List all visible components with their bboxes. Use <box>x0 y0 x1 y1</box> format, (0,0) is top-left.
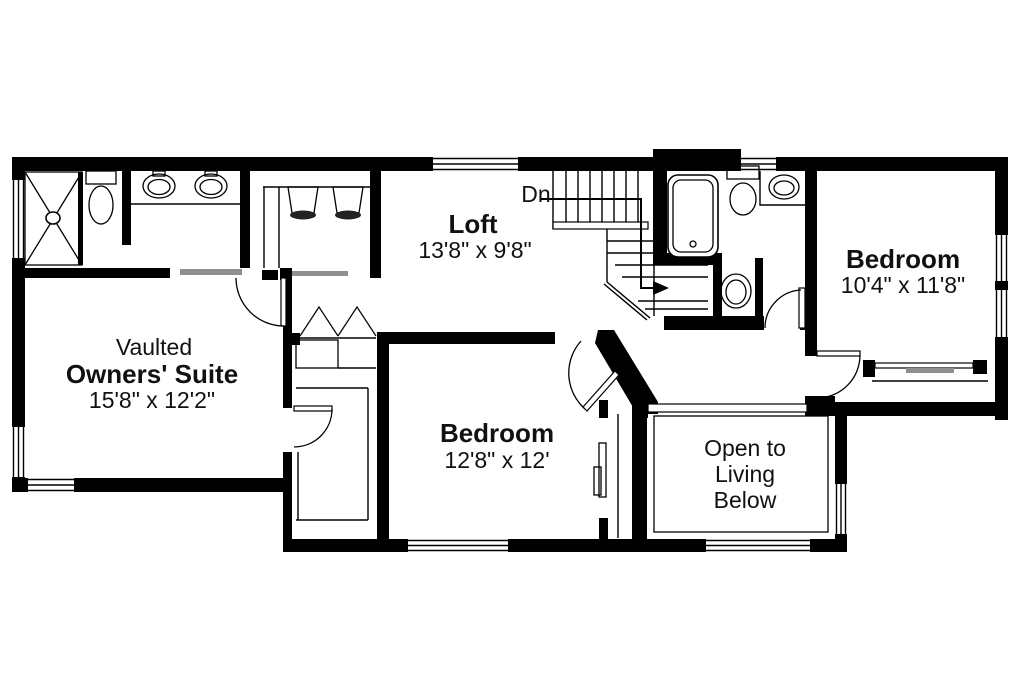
label-open-below-3: Below <box>714 487 777 513</box>
bedroom-right-closet-bypass-doors <box>875 363 973 373</box>
bifold-closet-doors <box>300 307 376 338</box>
bathtub-icon <box>668 175 718 257</box>
toilet-icon <box>727 166 759 215</box>
label-bedroom-middle-name: Bedroom <box>440 418 554 448</box>
label-owners-suite-prefix: Vaulted <box>116 334 192 360</box>
wall-top-plumbing-bump <box>653 149 741 158</box>
double-vanity-sink-icon <box>131 171 240 204</box>
window-left-upper <box>12 180 25 258</box>
linen-cabinet <box>296 340 376 368</box>
label-bedroom-right-name: Bedroom <box>846 244 960 274</box>
corner-sink-icon <box>760 171 806 205</box>
railing-post <box>633 400 648 418</box>
walk-in-closet-door <box>294 406 332 447</box>
label-stairs-dn: Dn <box>521 181 550 207</box>
wall-bath-bedroom-divider <box>805 157 817 356</box>
wall-passage-east-lower <box>283 452 292 539</box>
pedestal-sink-icon <box>721 274 751 308</box>
window-bedroom-right-east <box>995 235 1008 337</box>
label-owners-suite-name: Owners' Suite <box>66 359 238 389</box>
wall-bedroom-south-west <box>805 402 847 416</box>
labels: Vaulted Owners' Suite 15'8" x 12'2" Loft… <box>66 181 965 513</box>
wall-jamb-a <box>262 270 278 280</box>
wall-closet-post-bottom <box>599 518 608 539</box>
shower-icon <box>25 172 82 265</box>
toilet-icon <box>86 171 116 224</box>
bypass-door-panel <box>292 271 348 276</box>
hanging-clothes-icon <box>263 187 375 268</box>
floor-plan-drawing: Vaulted Owners' Suite 15'8" x 12'2" Loft… <box>0 0 1024 682</box>
wall-closet-east <box>370 157 381 278</box>
wall-bath-closet-divider <box>240 157 250 268</box>
label-open-below-1: Open to <box>704 435 786 461</box>
wall-rbed-closet-jamb-left <box>863 360 875 377</box>
railing-icon <box>648 404 807 412</box>
wall-loft-south <box>377 332 555 344</box>
wall-hall-north <box>664 316 764 330</box>
window-owners-suite-south <box>28 478 74 492</box>
hall-bath-door <box>765 288 805 328</box>
wall-closet-column-east <box>377 333 389 539</box>
window-loft-north <box>433 157 518 171</box>
label-open-below-2: Living <box>715 461 775 487</box>
wall-bifold-stub <box>283 333 300 345</box>
wall-sink-nook-west <box>713 253 722 320</box>
bypass-door-panel <box>180 269 242 275</box>
wall-rbed-closet-jamb-right <box>973 360 987 374</box>
label-bedroom-right-dims: 10'4" x 11'8" <box>841 272 965 298</box>
label-loft-name: Loft <box>448 209 497 239</box>
bedroom-right-door <box>817 351 860 398</box>
window-left-lower <box>12 427 25 477</box>
window-bedroom-middle-south <box>408 539 508 552</box>
wall-closet-post-top <box>599 400 608 418</box>
label-bedroom-middle-dims: 12'8" x 12' <box>444 447 549 473</box>
window-open-area-south <box>706 539 810 552</box>
stair-down-arrow <box>540 199 669 295</box>
stair-rail <box>553 222 648 229</box>
window-open-area-east <box>835 484 847 534</box>
shower-partition <box>78 172 83 265</box>
wall-bedroom-right-south <box>845 402 1008 416</box>
wall-stair-east <box>653 157 667 262</box>
wall-sink-nook-east <box>755 258 763 318</box>
wall-open-area-west <box>632 401 647 539</box>
wall-owners-bath-south <box>12 268 170 278</box>
owners-suite-entry-door <box>236 278 286 326</box>
floor-plan-page: Vaulted Owners' Suite 15'8" x 12'2" Loft… <box>0 0 1024 682</box>
label-loft-dims: 13'8" x 9'8" <box>418 237 531 263</box>
label-owners-suite-dims: 15'8" x 12'2" <box>89 387 215 413</box>
